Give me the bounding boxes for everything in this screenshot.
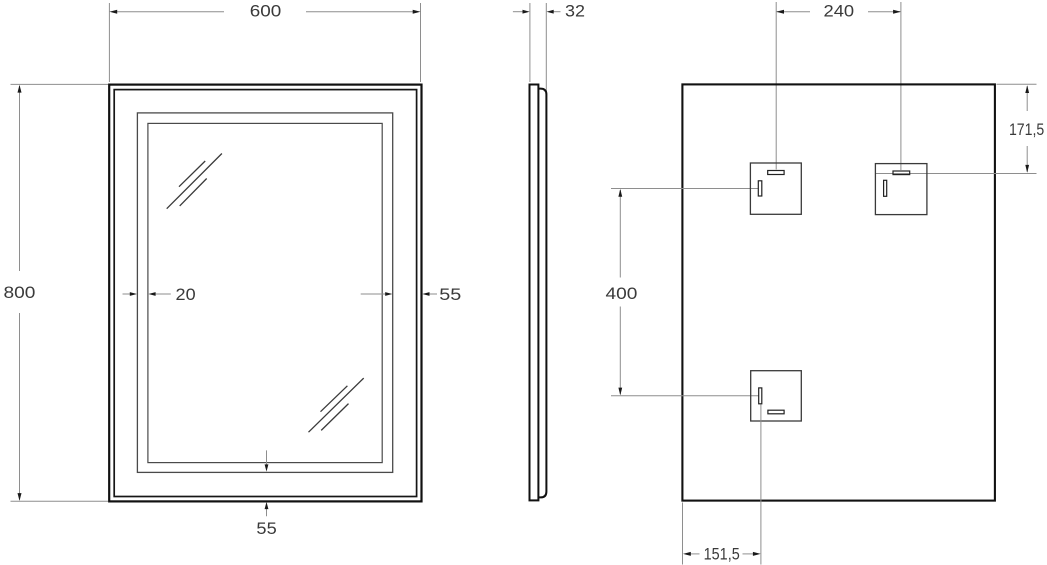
- svg-text:32: 32: [565, 2, 585, 21]
- svg-text:151,5: 151,5: [704, 544, 740, 563]
- svg-text:600: 600: [250, 2, 282, 21]
- svg-text:400: 400: [606, 284, 638, 303]
- svg-text:20: 20: [176, 285, 196, 304]
- svg-text:171,5: 171,5: [1009, 120, 1044, 139]
- svg-text:55: 55: [439, 285, 461, 304]
- svg-text:800: 800: [4, 283, 36, 302]
- svg-text:240: 240: [824, 2, 855, 21]
- svg-text:55: 55: [256, 519, 276, 538]
